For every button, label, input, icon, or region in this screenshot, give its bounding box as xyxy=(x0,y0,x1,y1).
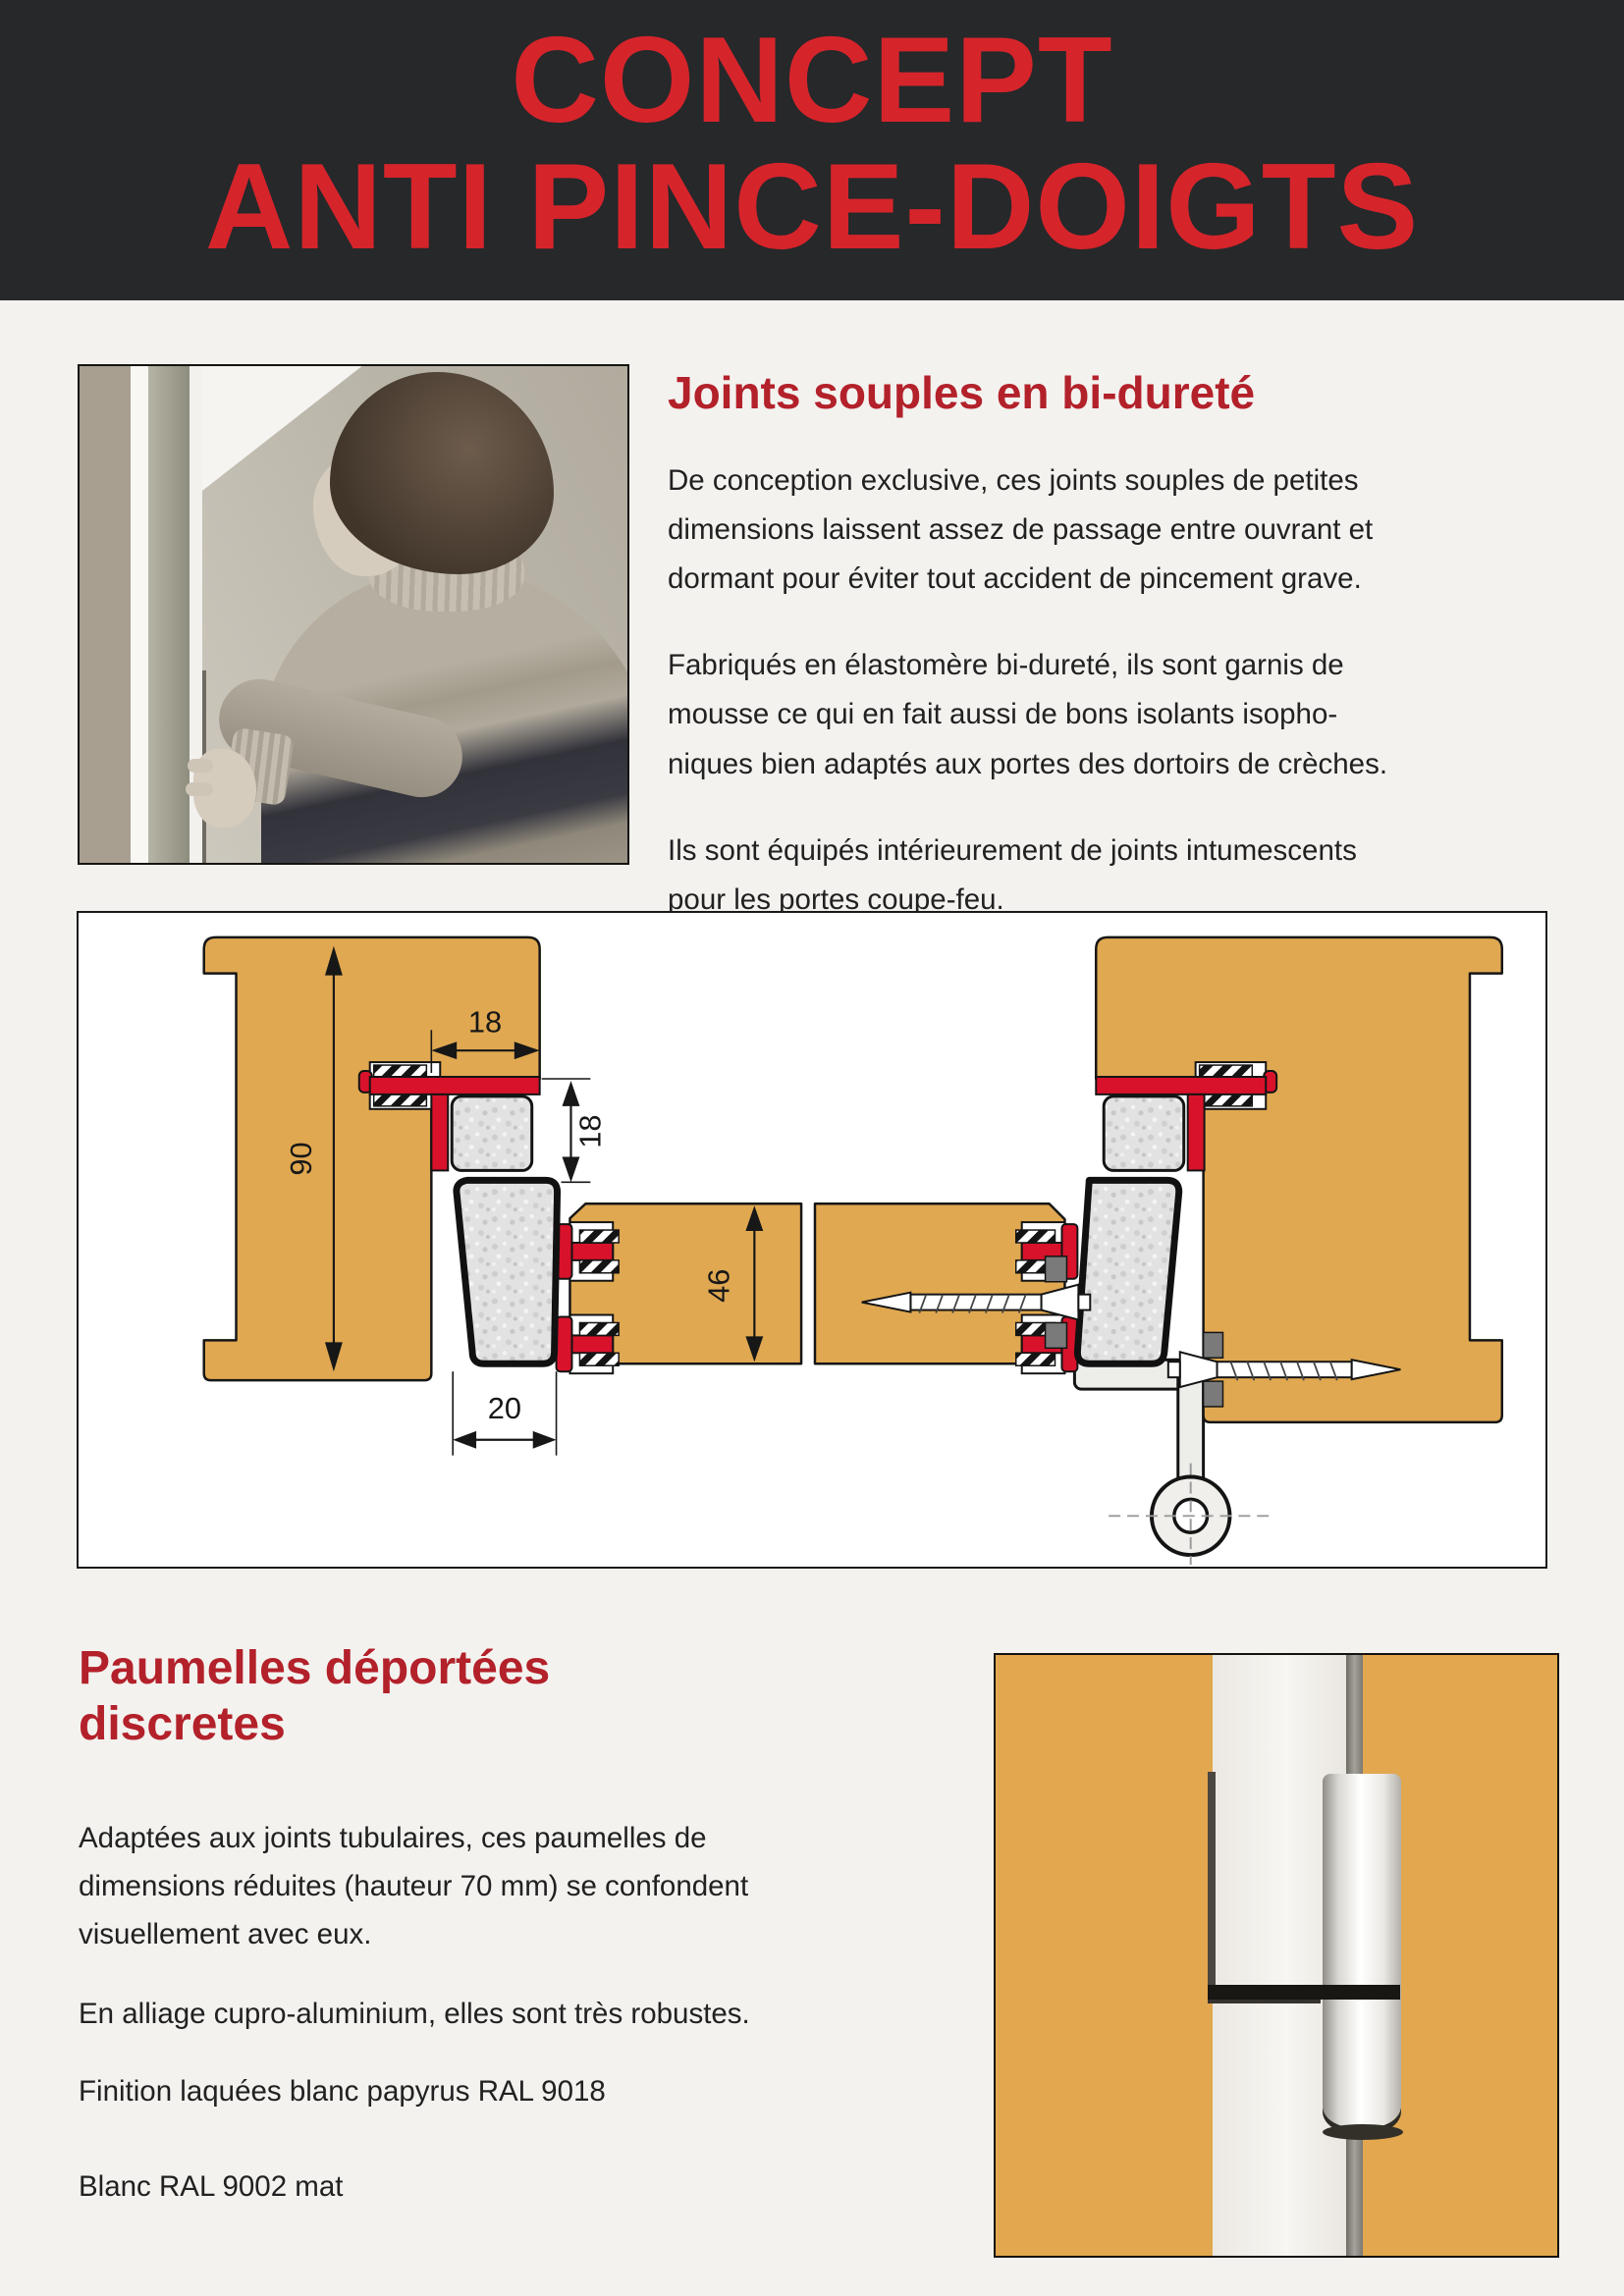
door-leaf-right xyxy=(815,1180,1179,1373)
dim-rebate-width: 18 xyxy=(468,1004,502,1039)
hinge-gap-line xyxy=(1208,1985,1400,2000)
photo-hinge-detail xyxy=(994,1653,1559,2258)
foam-insert xyxy=(452,1096,532,1171)
foam-tubular-joint xyxy=(1077,1180,1178,1363)
paumelles-heading-line1: Paumelles déportées xyxy=(79,1642,550,1694)
joints-section: Joints souples en bi-dureté De conceptio… xyxy=(668,367,1416,925)
dim-joint-width: 20 xyxy=(488,1391,521,1425)
hinge-knuckle-shadow xyxy=(1323,2124,1403,2140)
door-edge-strip xyxy=(148,366,189,863)
joints-paragraph-2: Fabriqués en élastomère bi-dureté, ils s… xyxy=(668,641,1416,788)
hinge-plate xyxy=(1208,1772,1321,2000)
door-frame-strip xyxy=(80,366,131,863)
cross-section-drawing: 90 18 18 46 20 xyxy=(79,913,1545,1567)
paumelles-paragraph-3: Finition laquées blanc papyrus RAL 9018 xyxy=(79,2068,766,2116)
joints-paragraph-1: De conception exclusive, ces joints soup… xyxy=(668,456,1416,604)
dim-overlap: 18 xyxy=(572,1115,607,1148)
child-finger xyxy=(186,782,213,796)
tubular-joint-clip xyxy=(557,1224,620,1279)
paumelles-paragraph-4: Blanc RAL 9002 mat xyxy=(79,2163,766,2212)
paumelles-paragraph-2: En alliage cupro-aluminium, elles sont t… xyxy=(79,1991,766,2039)
page-title-line1: CONCEPT xyxy=(511,13,1112,148)
hinge-knuckle xyxy=(1323,1774,1401,2127)
foam-tubular-joint xyxy=(457,1180,558,1363)
photo-child-at-door xyxy=(78,364,629,865)
tubular-joint-clip xyxy=(557,1317,620,1372)
joints-paragraph-3: Ils sont équipés intérieurement de joint… xyxy=(668,827,1416,925)
page-title-line2: ANTI PINCE-DOIGTS xyxy=(205,139,1419,275)
paumelles-paragraph-1: Adaptées aux joints tubulaires, ces paum… xyxy=(79,1815,766,1959)
joints-heading: Joints souples en bi-dureté xyxy=(668,367,1416,419)
child-finger xyxy=(188,759,213,773)
paumelles-heading-line2: discretes xyxy=(79,1698,286,1750)
paumelles-section: Paumelles déportées discretes Adaptées a… xyxy=(79,1641,766,2212)
dim-leaf-thickness: 46 xyxy=(702,1269,736,1303)
dim-frame-depth: 90 xyxy=(284,1142,318,1175)
header-banner: CONCEPT ANTI PINCE-DOIGTS xyxy=(0,0,1624,300)
paumelles-heading: Paumelles déportées discretes xyxy=(79,1641,766,1752)
page-title: CONCEPT ANTI PINCE-DOIGTS xyxy=(0,0,1624,271)
door-gap xyxy=(131,366,148,863)
technical-cross-section-diagram: 90 18 18 46 20 xyxy=(77,911,1547,1569)
gasket-red-profile xyxy=(370,1077,540,1095)
